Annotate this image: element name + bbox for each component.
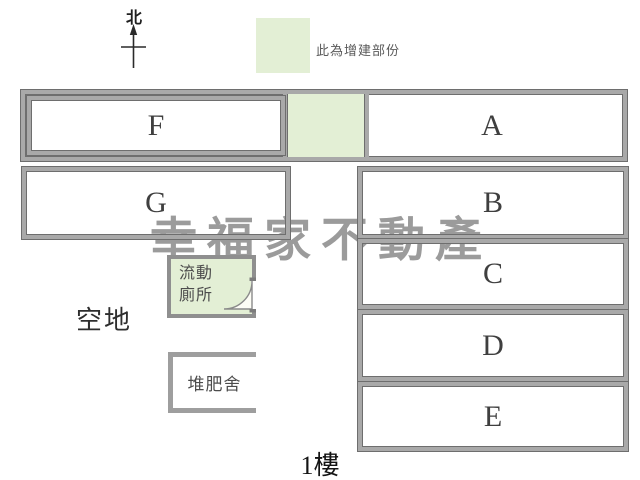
extension-cell [283, 94, 369, 157]
open-space-label: 空地 [76, 300, 132, 337]
room-label-c: C [483, 257, 503, 291]
room-box-c: C [358, 239, 628, 309]
door-swing-icon [167, 255, 256, 318]
room-area-a: A [361, 94, 623, 157]
portable-toilet-box: 流動 廁所 [167, 255, 256, 318]
room-box-f: F [27, 96, 285, 155]
room-label-f: F [148, 109, 165, 143]
room-label-g: G [145, 186, 167, 220]
room-box-g: G [22, 167, 290, 239]
room-label-d: D [482, 329, 504, 363]
compost-shed-label: 堆肥舍 [188, 370, 242, 395]
compost-shed-box: 堆肥舍 [168, 352, 256, 413]
room-box-b: B [358, 167, 628, 239]
floor-plan-canvas: 北 此為增建部份 幸福家不動產 F A G B C D E 流動 廁所 [0, 0, 640, 480]
building-strip-top: F A [21, 90, 627, 161]
legend-extension-label: 此為增建部份 [316, 40, 400, 59]
legend-extension-swatch [256, 18, 310, 73]
room-label-b: B [483, 186, 503, 220]
room-box-d: D [358, 310, 628, 381]
room-label-a: A [481, 109, 503, 143]
north-arrow-icon [118, 22, 150, 72]
room-label-e: E [484, 400, 502, 434]
room-box-e: E [358, 382, 628, 451]
